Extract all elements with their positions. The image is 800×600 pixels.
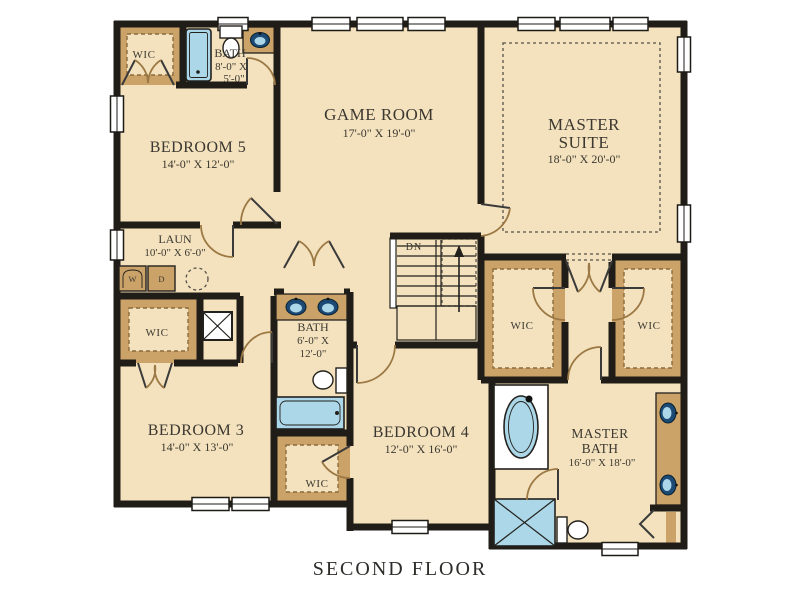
master-suite-label2: SUITE: [559, 133, 610, 152]
dryer-label: D: [158, 274, 164, 284]
stair-rail-left: [390, 238, 396, 308]
wic-master-right-label: WIC: [638, 320, 661, 332]
bath-top-label: BATH: [214, 46, 246, 60]
bedroom5-label: BEDROOM 5: [150, 139, 247, 156]
game-room-label: GAME ROOM: [324, 105, 434, 124]
wic-top-left-label: WIC: [133, 49, 156, 61]
window: [678, 37, 691, 72]
wic-master-left-label: WIC: [511, 320, 534, 332]
stairs-dn-label: DN: [406, 242, 422, 253]
bedroom4-dims: 12'-0" X 16'-0": [385, 442, 458, 456]
bath-top-dim2: 5'-0": [223, 73, 244, 85]
window: [392, 521, 428, 534]
window: [678, 205, 691, 242]
master-shower: [494, 499, 555, 546]
bedroom3-label: BEDROOM 3: [148, 422, 245, 439]
laundry-dims: 10'-0" X 6'-0": [144, 247, 205, 259]
top-bath-sink: [251, 32, 270, 47]
washer-label: W: [128, 274, 136, 284]
floor-plan: WIC BATH 8'-0" X 5'-0" BEDROOM 5 14'-0" …: [0, 0, 800, 600]
window: [613, 18, 648, 31]
window: [192, 498, 229, 511]
window: [111, 230, 124, 260]
window: [602, 543, 638, 556]
window: [560, 18, 610, 31]
window: [111, 96, 124, 132]
window: [312, 18, 350, 31]
master-bath-nook-shelf: [666, 512, 676, 546]
top-bath-shower: [186, 29, 211, 81]
window: [357, 18, 403, 31]
linen-chase: [203, 312, 232, 340]
master-suite-dims: 18'-0" X 20'-0": [548, 152, 621, 166]
bath-middle-dim2: 12'-0": [300, 348, 327, 360]
master-bath-label1: MASTER: [571, 426, 628, 441]
middle-bath-tub: [276, 397, 344, 429]
floor-caption: SECOND FLOOR: [313, 558, 488, 580]
master-bath-label2: BATH: [582, 441, 619, 456]
game-room-dims: 17'-0" X 19'-0": [343, 126, 416, 140]
wic-bedroom4-label: WIC: [306, 478, 329, 490]
window: [408, 18, 445, 31]
master-bath-dims: 16'-0" X 18'-0": [569, 457, 636, 469]
window: [232, 498, 269, 511]
wic-bedroom3-label: WIC: [146, 327, 169, 339]
bedroom3-dims: 14'-0" X 13'-0": [161, 440, 234, 454]
bath-middle-dim1: 6'-0" X: [297, 335, 329, 347]
master-tub: [494, 385, 548, 469]
window: [518, 18, 555, 31]
floor-footprint: [114, 21, 687, 549]
wic-bedroom4-room: [274, 433, 350, 504]
floor-plan-page: WIC BATH 8'-0" X 5'-0" BEDROOM 5 14'-0" …: [0, 0, 800, 600]
bath-middle-label: BATH: [297, 320, 329, 334]
master-suite-label1: MASTER: [548, 115, 620, 134]
bedroom5-dims: 14'-0" X 12'-0": [162, 157, 235, 171]
laundry-label: LAUN: [158, 232, 192, 246]
bath-top-dim1: 8'-0" X: [215, 61, 247, 73]
cased-opening: [566, 252, 612, 262]
bedroom4-label: BEDROOM 4: [373, 424, 470, 441]
